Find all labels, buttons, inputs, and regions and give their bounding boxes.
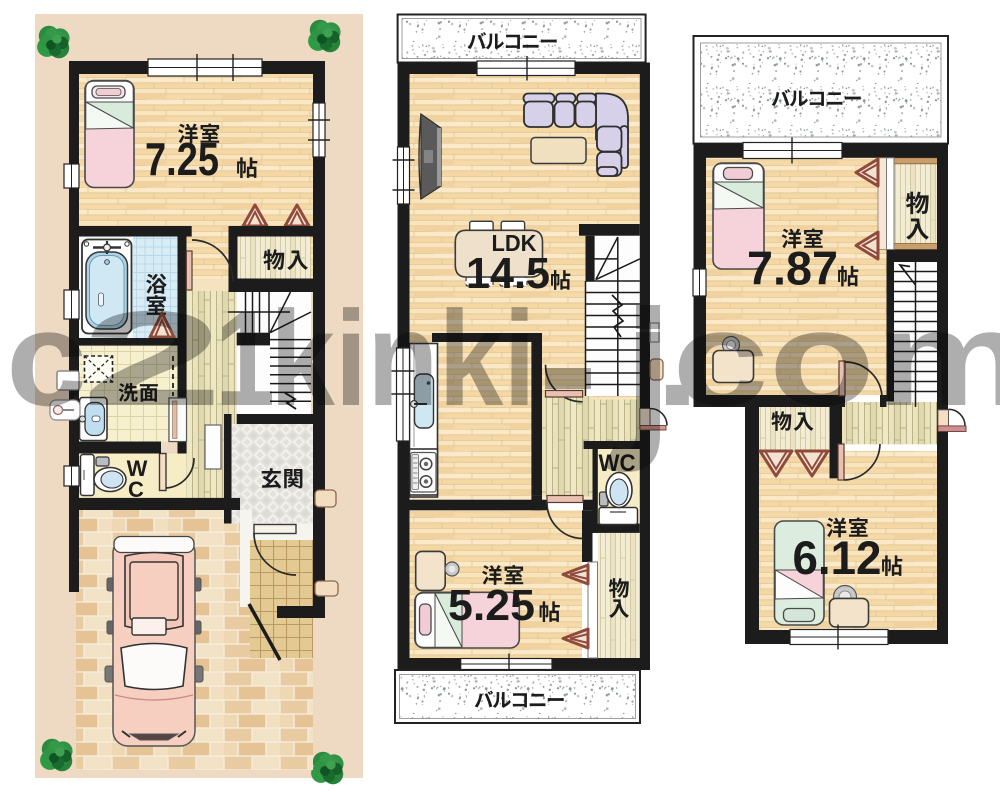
svg-text:5.25: 5.25 — [448, 581, 535, 630]
svg-text:c: c — [6, 283, 87, 434]
svg-text:com: com — [672, 284, 1000, 435]
svg-text:2: 2 — [81, 283, 224, 434]
svg-text:7.25: 7.25 — [145, 133, 219, 185]
svg-text:kinki: kinki — [270, 283, 536, 434]
svg-text:6.12: 6.12 — [793, 531, 882, 584]
svg-text:1: 1 — [215, 282, 275, 433]
